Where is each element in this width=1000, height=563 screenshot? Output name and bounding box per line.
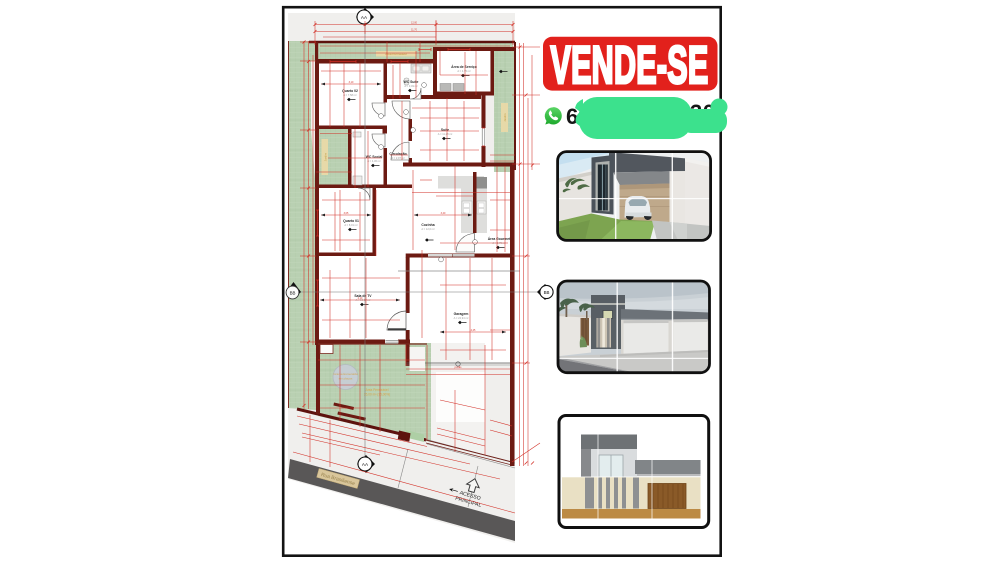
svg-text:4,45: 4,45 — [471, 329, 476, 332]
svg-text:A = 4,36 m²: A = 4,36 m² — [367, 159, 380, 163]
svg-text:A = 22,94 m²: A = 22,94 m² — [454, 316, 469, 320]
svg-text:Área Permeável: Área Permeável — [366, 388, 389, 392]
svg-text:Quarto 01: Quarto 01 — [343, 219, 359, 223]
svg-text:Garagem: Garagem — [454, 312, 469, 316]
svg-text:AA: AA — [362, 462, 369, 467]
svg-text:Área Gourmet: Área Gourmet — [488, 236, 511, 241]
svg-text:WC Suíte: WC Suíte — [404, 80, 419, 84]
svg-text:AA: AA — [361, 15, 368, 20]
svg-text:A = 4,75 m²: A = 4,75 m² — [457, 69, 470, 73]
svg-text:BB: BB — [290, 291, 296, 296]
svg-text:A = 12,0 m²: A = 12,0 m² — [421, 227, 434, 231]
svg-text:4,10: 4,10 — [358, 297, 363, 300]
svg-text:Área de Serviço: Área de Serviço — [451, 64, 477, 69]
svg-text:Suíte: Suíte — [441, 128, 449, 132]
svg-text:Cozinha: Cozinha — [421, 223, 434, 227]
svg-text:A = 8,01 m²: A = 8,01 m² — [344, 223, 357, 227]
svg-text:35,00 m² (35,00%): 35,00 m² (35,00%) — [364, 393, 390, 397]
svg-text:A = 2,97 m²: A = 2,97 m² — [391, 156, 404, 160]
svg-text:3,40: 3,40 — [441, 212, 446, 215]
svg-text:11,70: 11,70 — [411, 29, 417, 32]
svg-text:3,10: 3,10 — [349, 81, 354, 84]
svg-text:Jardim: Jardim — [324, 152, 328, 161]
svg-text:3,05: 3,05 — [344, 212, 349, 215]
svg-text:Circulação: Circulação — [389, 152, 406, 156]
svg-text:Jardim: Jardim — [503, 113, 507, 122]
svg-text:portão: portão — [455, 366, 462, 369]
svg-text:A = 7,58 m²: A = 7,58 m² — [343, 93, 356, 97]
svg-text:VENDE-SE: VENDE-SE — [550, 36, 708, 95]
svg-text:BB: BB — [544, 290, 550, 295]
svg-text:Quarto 02: Quarto 02 — [342, 89, 358, 93]
svg-text:Grama Esmeralda: Grama Esmeralda — [333, 372, 358, 376]
svg-text:em placas: em placas — [339, 377, 353, 381]
svg-text:12,00: 12,00 — [411, 22, 418, 25]
svg-text:A = 11,28 m²: A = 11,28 m² — [438, 132, 453, 136]
